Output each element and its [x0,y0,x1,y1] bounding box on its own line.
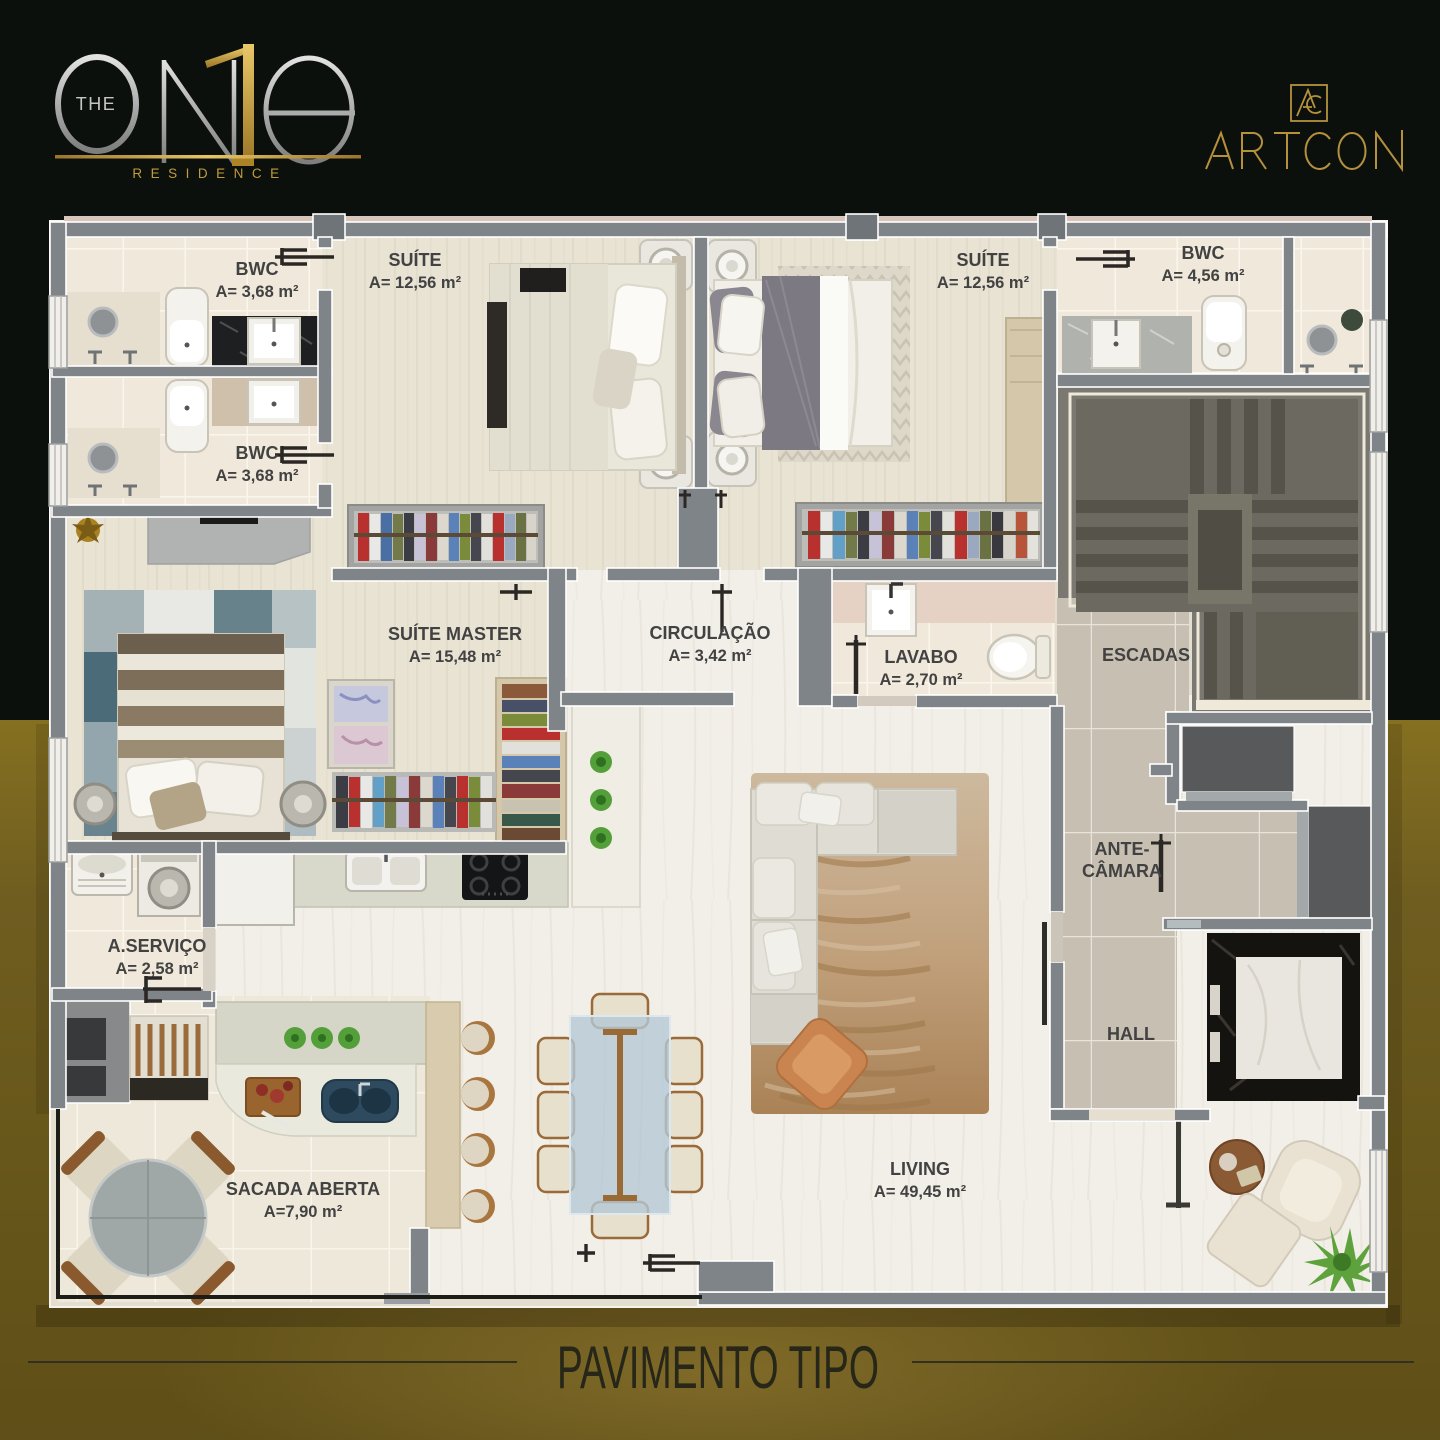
svg-text:CIRCULAÇÃO: CIRCULAÇÃO [650,622,771,643]
svg-text:RESIDENCE: RESIDENCE [132,166,287,181]
svg-text:CÂMARA: CÂMARA [1082,860,1162,881]
svg-text:A= 2,70 m²: A= 2,70 m² [880,671,964,689]
svg-text:A= 4,56 m²: A= 4,56 m² [1162,267,1246,285]
svg-text:A= 3,68 m²: A= 3,68 m² [216,283,300,301]
svg-text:A.SERVIÇO: A.SERVIÇO [108,936,207,956]
svg-text:LIVING: LIVING [890,1159,950,1179]
svg-text:BWC: BWC [236,259,279,279]
svg-text:A= 15,48 m²: A= 15,48 m² [409,648,502,666]
svg-text:A= 2,58 m²: A= 2,58 m² [116,960,200,978]
svg-text:BWC: BWC [1182,243,1225,263]
svg-text:A= 12,56 m²: A= 12,56 m² [937,274,1030,292]
svg-text:LAVABO: LAVABO [884,647,957,667]
svg-text:A= 3,42 m²: A= 3,42 m² [669,647,753,665]
svg-text:A= 12,56 m²: A= 12,56 m² [369,274,462,292]
svg-text:ANTE-: ANTE- [1095,839,1150,859]
svg-text:ESCADAS: ESCADAS [1102,645,1190,665]
svg-text:PAVIMENTO TIPO: PAVIMENTO TIPO [557,1334,879,1401]
svg-text:THE: THE [76,94,117,114]
svg-text:SACADA ABERTA: SACADA ABERTA [226,1179,380,1199]
svg-text:SUÍTE: SUÍTE [956,249,1009,270]
svg-text:A= 3,68 m²: A= 3,68 m² [216,467,300,485]
svg-text:SUÍTE MASTER: SUÍTE MASTER [388,623,522,644]
svg-text:A=7,90 m²: A=7,90 m² [264,1203,343,1221]
svg-text:A= 49,45 m²: A= 49,45 m² [874,1183,967,1201]
svg-text:HALL: HALL [1107,1024,1155,1044]
svg-text:SUÍTE: SUÍTE [388,249,441,270]
svg-text:BWC: BWC [236,443,279,463]
